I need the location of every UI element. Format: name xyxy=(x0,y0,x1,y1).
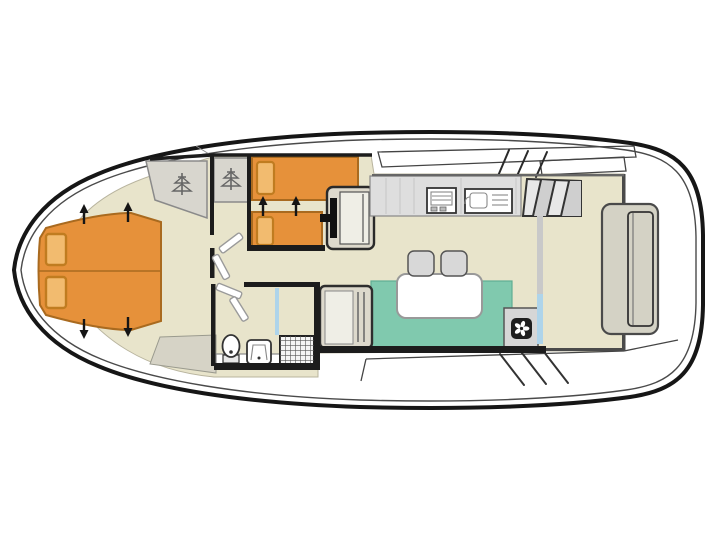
companionway-steps xyxy=(523,179,581,216)
helm-station xyxy=(320,187,374,249)
wall xyxy=(211,284,216,366)
bed-foot-wall xyxy=(247,245,325,251)
shower-tray-grid xyxy=(280,336,314,364)
deck-plan-canvas xyxy=(0,0,720,540)
pillow xyxy=(257,217,273,245)
wall xyxy=(244,282,318,287)
saloon-side-wall xyxy=(316,346,546,353)
steering-wheel xyxy=(320,214,331,222)
helm-seat-pad xyxy=(340,192,369,244)
toilet xyxy=(223,335,240,363)
wall xyxy=(247,155,251,251)
stool xyxy=(441,251,467,276)
bench-seat xyxy=(320,286,372,348)
cabin-side-line xyxy=(372,174,624,176)
stern-bench xyxy=(602,204,658,334)
deck-plan xyxy=(0,0,720,540)
sliding-door xyxy=(537,294,543,344)
hob xyxy=(427,188,456,213)
pillow xyxy=(46,234,66,265)
washbasin xyxy=(247,340,271,364)
shower-screen xyxy=(275,288,279,335)
sink xyxy=(465,189,512,213)
pillow xyxy=(46,277,66,308)
pillow xyxy=(257,162,274,194)
aft-sill xyxy=(546,348,624,351)
partition-upper xyxy=(537,216,543,294)
wall xyxy=(214,363,320,370)
wall xyxy=(210,248,215,278)
stern xyxy=(602,204,658,334)
wall xyxy=(210,155,214,235)
steering-column xyxy=(330,198,337,238)
dinette-table xyxy=(397,274,482,318)
wall xyxy=(314,282,320,370)
fan-heater-unit xyxy=(504,308,538,348)
stool xyxy=(408,251,434,276)
galley xyxy=(370,176,521,216)
